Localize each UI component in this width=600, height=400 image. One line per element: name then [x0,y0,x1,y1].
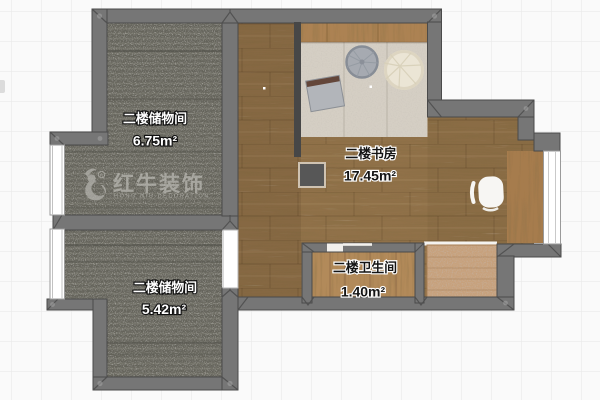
svg-text:HONG NIU DECORATION: HONG NIU DECORATION [114,194,210,200]
svg-text:红牛装饰: 红牛装饰 [113,172,205,196]
svg-text:二楼储物间: 二楼储物间 [133,280,197,295]
svg-text:1.40m²: 1.40m² [341,284,386,300]
svg-text:6.75m²: 6.75m² [133,133,178,149]
svg-text:5.42m²: 5.42m² [142,301,187,317]
svg-text:二楼卫生间: 二楼卫生间 [333,260,397,275]
svg-text:二楼书房: 二楼书房 [345,146,396,161]
svg-text:R: R [100,173,104,179]
svg-text:二楼储物间: 二楼储物间 [123,111,187,126]
svg-text:17.45m²: 17.45m² [344,168,396,184]
